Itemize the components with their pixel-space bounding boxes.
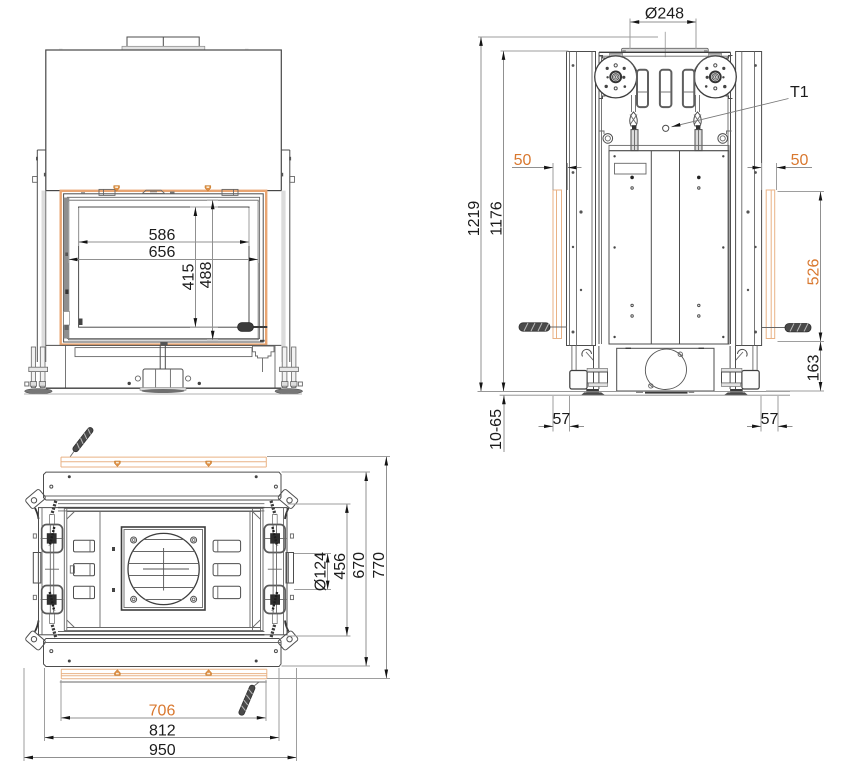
svg-text:163: 163 xyxy=(805,355,822,382)
svg-text:T1: T1 xyxy=(790,84,809,101)
svg-text:770: 770 xyxy=(371,552,388,579)
svg-text:950: 950 xyxy=(149,742,176,759)
svg-text:415: 415 xyxy=(180,264,197,291)
svg-text:Ø124: Ø124 xyxy=(313,552,330,591)
svg-text:50: 50 xyxy=(514,152,532,169)
svg-text:57: 57 xyxy=(553,411,571,428)
svg-text:10-65: 10-65 xyxy=(488,409,505,450)
svg-text:50: 50 xyxy=(791,152,809,169)
svg-text:Ø248: Ø248 xyxy=(645,6,684,23)
svg-text:488: 488 xyxy=(198,262,215,289)
svg-text:812: 812 xyxy=(149,722,176,739)
svg-text:526: 526 xyxy=(805,259,822,286)
svg-text:1219: 1219 xyxy=(466,201,483,237)
svg-text:670: 670 xyxy=(351,552,368,579)
svg-text:1176: 1176 xyxy=(488,201,505,236)
svg-text:706: 706 xyxy=(149,703,176,720)
svg-text:586: 586 xyxy=(149,227,176,244)
svg-text:57: 57 xyxy=(761,411,779,428)
svg-text:656: 656 xyxy=(149,244,176,261)
svg-text:456: 456 xyxy=(332,553,349,580)
